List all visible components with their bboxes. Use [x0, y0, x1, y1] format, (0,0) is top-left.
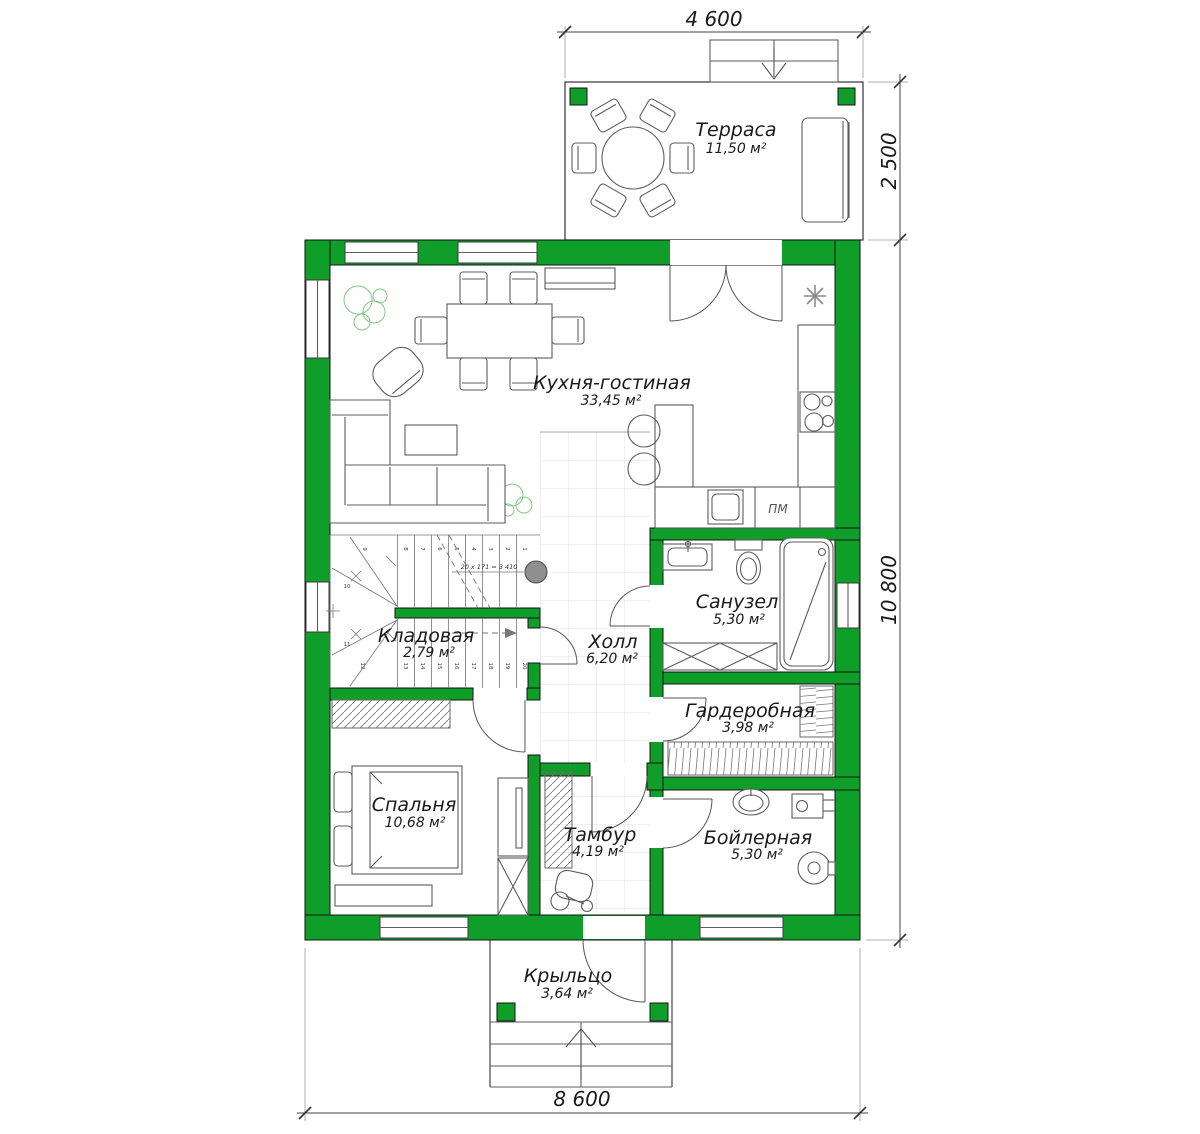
window: [700, 917, 783, 938]
terrace-chair: [670, 143, 694, 173]
chair: [510, 272, 537, 304]
stair-step-number: 6: [436, 547, 442, 551]
sink: [733, 788, 769, 815]
stair-step-number: 11: [344, 642, 351, 648]
room-label-vestibule: Тамбур: [564, 824, 637, 846]
corner-sofa: [330, 400, 505, 523]
room-area-storage: 2,79 м²: [403, 645, 455, 661]
stair-step-number: 18: [487, 663, 493, 670]
ventilation-mark: [804, 285, 826, 307]
stair-formula: 20 x 171 = 3 410: [461, 563, 518, 571]
chair: [460, 272, 487, 304]
bathroom-door-opening: [649, 585, 664, 628]
stair-post: [525, 561, 547, 583]
room-area-terrace: 11,50 м²: [706, 141, 767, 157]
stair-step-number: 9: [361, 547, 367, 551]
window: [306, 582, 329, 632]
water-heater: [798, 852, 835, 884]
dishwasher-label: ПМ: [768, 502, 788, 516]
coffee-table: [405, 425, 457, 455]
dresser: [498, 858, 528, 915]
window: [380, 917, 468, 938]
chair: [460, 358, 487, 390]
dining-table: [447, 304, 552, 358]
tv-stand: [498, 778, 528, 856]
clothes-rack: [668, 742, 833, 775]
terrace-column: [570, 88, 587, 105]
dimension-terrace-depth: 2 500: [877, 132, 901, 189]
window: [837, 583, 859, 628]
room-label-storage: Кладовая: [378, 625, 474, 647]
chair: [415, 317, 447, 344]
terrace-french-door: [670, 265, 782, 321]
boiler-door-opening: [649, 797, 664, 848]
plant: [344, 286, 387, 330]
round-table: [602, 127, 664, 189]
dimension-top: 4 600: [685, 7, 742, 31]
stair-step-number: 15: [436, 663, 442, 670]
room-area-bedroom: 10,68 м²: [385, 815, 446, 831]
room-label-kitchen-living: Кухня-гостиная: [533, 372, 691, 394]
window: [458, 242, 537, 263]
room-label-bathroom: Санузел: [696, 591, 779, 613]
pillow: [334, 772, 352, 812]
room-area-kitchen-living: 33,45 м²: [581, 393, 642, 409]
stair-step-number: 5: [453, 547, 459, 551]
stair-step-number: 13: [402, 663, 408, 670]
room-label-porch: Крыльцо: [524, 965, 612, 987]
floor-plan: ПМ 20 x 171: [0, 0, 1200, 1134]
stair-step-number: 14: [419, 663, 425, 670]
entrance-door-opening: [583, 916, 645, 939]
pillow: [334, 826, 352, 866]
room-label-boiler: Бойлерная: [704, 827, 812, 849]
bathtub: [780, 538, 833, 670]
terrace-chair: [572, 143, 596, 173]
terrace-door-opening: [670, 240, 782, 265]
stair-step-number: 3: [487, 547, 493, 551]
stair-step-number: 12: [359, 663, 365, 670]
bedroom-door: [473, 700, 525, 752]
room-area-porch: 3,64 м²: [541, 986, 593, 1002]
room-area-hall: 6,20 м²: [586, 651, 638, 667]
dimension-house-depth: 10 800: [877, 555, 901, 625]
room-area-wardrobe: 3,98 м²: [722, 720, 774, 736]
terrace-steps: [710, 40, 838, 82]
dimension-bottom: 8 600: [553, 1087, 610, 1111]
porch-column: [497, 1003, 515, 1021]
kitchen-sink: [708, 490, 743, 524]
stair-step-number: 20: [521, 663, 527, 670]
sideboard: [545, 268, 615, 289]
stair-step-number: 7: [419, 547, 425, 551]
toilet: [735, 540, 762, 584]
room-label-terrace: Терраса: [695, 119, 776, 141]
stair-step-number: 8: [402, 547, 408, 551]
bar-counter: [655, 405, 693, 487]
window: [306, 280, 329, 358]
closet: [332, 700, 450, 728]
wardrobe-door-opening: [649, 697, 664, 742]
room-area-boiler: 5,30 м²: [731, 847, 783, 863]
floor-plan-drawing: ПМ 20 x 171: [0, 0, 1200, 1134]
stove: [800, 392, 835, 432]
room-area-vestibule: 4,19 м²: [572, 844, 624, 860]
sink: [663, 540, 712, 570]
kitchen-counter: ПМ: [628, 325, 835, 528]
bathroom-cabinet: [663, 643, 777, 670]
armchair: [367, 341, 429, 402]
stair-step-number: 2: [504, 547, 510, 551]
porch-column: [650, 1003, 668, 1021]
room-area-bathroom: 5,30 м²: [713, 612, 765, 628]
room-label-wardrobe: Гардеробная: [685, 700, 815, 722]
stair-step-number: 10: [344, 584, 351, 590]
plant: [501, 484, 532, 516]
terrace-bench: [802, 118, 849, 222]
bedroom-bench: [335, 885, 432, 906]
steps-direction-arrow: [566, 1029, 596, 1080]
stair-step-number: 16: [453, 663, 459, 670]
coat-rack: [545, 772, 572, 868]
window: [345, 242, 418, 263]
stair-step-number: 19: [504, 663, 510, 670]
room-label-hall: Холл: [588, 631, 638, 653]
wall-boiler: [792, 794, 835, 818]
stair-step-number: 1: [521, 547, 527, 551]
stair-step-number: 4: [470, 547, 476, 551]
chair: [552, 317, 584, 344]
room-label-bedroom: Спальня: [372, 794, 457, 816]
terrace-column: [838, 88, 855, 105]
stair-break-line: [437, 535, 490, 608]
stair-step-number: 17: [470, 663, 476, 670]
